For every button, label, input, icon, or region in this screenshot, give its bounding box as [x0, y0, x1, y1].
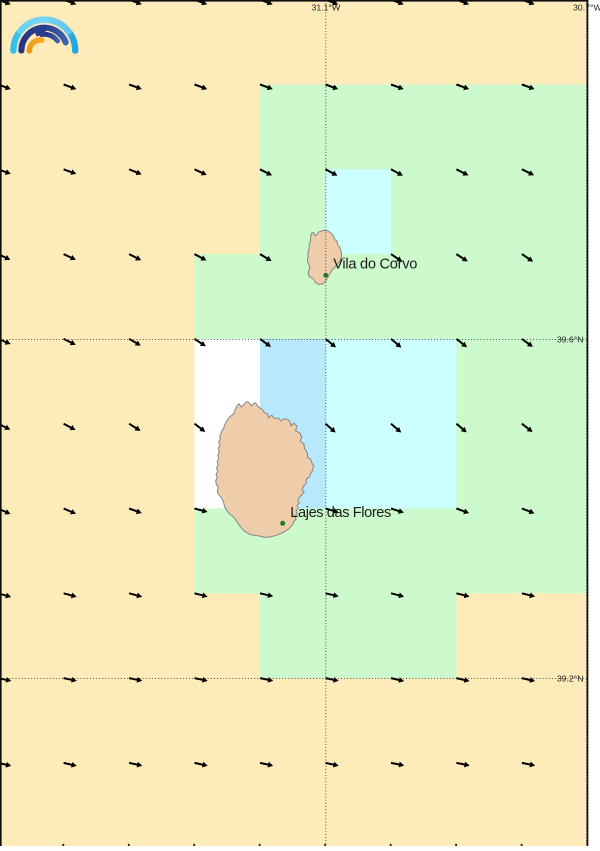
svg-text:30.7°W: 30.7°W — [573, 2, 600, 12]
svg-text:39.6°N: 39.6°N — [557, 335, 584, 345]
svg-text:Lajes das Flores: Lajes das Flores — [290, 505, 391, 521]
svg-text:39.2°N: 39.2°N — [557, 673, 584, 683]
svg-text:31.1°W: 31.1°W — [312, 2, 341, 12]
svg-text:Vila do Corvo: Vila do Corvo — [333, 257, 417, 273]
